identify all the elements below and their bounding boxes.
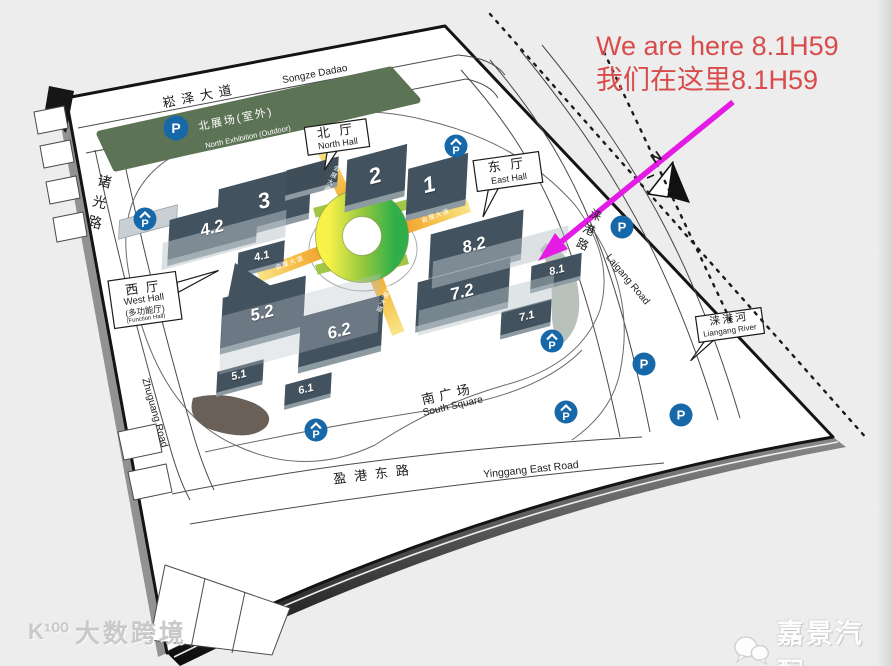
- svg-text:P: P: [618, 220, 627, 235]
- svg-text:P: P: [141, 218, 148, 230]
- svg-text:P: P: [640, 357, 649, 372]
- watermark-text: 大数跨境: [75, 614, 187, 650]
- svg-text:P: P: [677, 408, 686, 423]
- parking-icon: P: [164, 116, 189, 141]
- svg-text:P: P: [562, 411, 569, 423]
- annotation-line2: 我们在这里8.1H59: [596, 64, 818, 96]
- k100-logo-icon: K¹⁰⁰: [28, 619, 69, 645]
- brand-logo: 嘉景汽配: [733, 612, 892, 666]
- parking-icon: P: [633, 353, 656, 376]
- wechat-icon: [733, 635, 771, 666]
- brand-text: 嘉景汽配: [777, 612, 892, 666]
- map-canvas: P P P P P P P P P: [0, 0, 892, 666]
- annotation-line1: We are here 8.1H59: [596, 30, 839, 62]
- parking-icon: P: [555, 401, 578, 424]
- svg-text:P: P: [171, 120, 180, 136]
- svg-text:P: P: [312, 429, 319, 441]
- screenshot-edge-shade: [877, 0, 892, 666]
- svg-text:P: P: [548, 340, 555, 352]
- watermark: K¹⁰⁰ 大数跨境: [28, 614, 187, 650]
- parking-icon: P: [541, 330, 564, 353]
- parking-icon: P: [611, 216, 634, 239]
- parking-icon: P: [134, 208, 157, 231]
- parking-icon: P: [305, 419, 328, 442]
- svg-text:P: P: [452, 145, 459, 157]
- exhibition-map-image: P P P P P P P P P: [0, 0, 892, 666]
- parking-icon: P: [670, 404, 693, 427]
- parking-icon: P: [445, 135, 468, 158]
